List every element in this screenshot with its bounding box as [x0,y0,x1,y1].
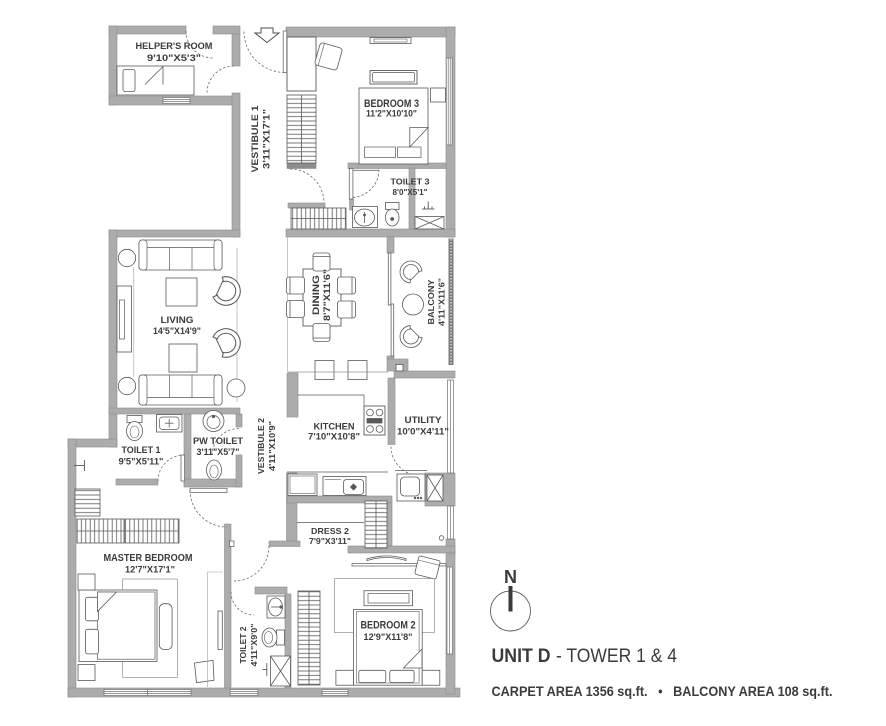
svg-text:TOILET 1: TOILET 1 [122,445,162,456]
svg-text:8'7"X11'6": 8'7"X11'6" [322,269,332,321]
svg-text:N: N [504,567,517,587]
svg-text:DRESS 2: DRESS 2 [311,526,349,536]
svg-text:9'10"X5'3": 9'10"X5'3" [147,53,201,63]
svg-text:DINING: DINING [311,275,322,315]
svg-text:BEDROOM 2: BEDROOM 2 [361,620,416,632]
svg-text:14'5"X14'9": 14'5"X14'9" [153,326,201,336]
svg-text:3'11"X17'1": 3'11"X17'1" [262,109,272,169]
svg-text:12'7"X17'1": 12'7"X17'1" [125,565,175,576]
svg-text:8'0"X5'1": 8'0"X5'1" [393,188,428,197]
svg-text:MASTER BEDROOM: MASTER BEDROOM [104,552,193,564]
svg-text:10'0"X4'11": 10'0"X4'11" [397,427,449,437]
svg-text:UTILITY: UTILITY [405,415,443,426]
svg-text:7'9"X3'11": 7'9"X3'11" [309,537,351,546]
svg-text:UNIT D: UNIT D [492,646,551,667]
svg-text:BALCONY: BALCONY [426,279,436,324]
svg-text:- TOWER 1 & 4: - TOWER 1 & 4 [556,646,677,667]
svg-text:11'2"X10'10": 11'2"X10'10" [366,109,417,120]
svg-text:VESTIBULE 2: VESTIBULE 2 [256,418,266,474]
svg-text:VESTIBULE 1: VESTIBULE 1 [250,105,261,173]
svg-text:TOILET 2: TOILET 2 [238,626,248,663]
svg-text:PW TOILET: PW TOILET [193,436,243,447]
svg-text:CARPET AREA 1356 sq.ft. •: CARPET AREA 1356 sq.ft. • BALCONY AREA 1… [492,684,833,699]
svg-text:12'9"X11'8": 12'9"X11'8" [364,632,413,643]
svg-text:3'11"X5'7": 3'11"X5'7" [197,447,240,457]
svg-text:9'5"X5'11": 9'5"X5'11" [119,457,164,467]
svg-text:4'11"X11'6": 4'11"X11'6" [438,278,447,326]
svg-text:HELPER'S ROOM: HELPER'S ROOM [136,41,213,52]
svg-text:4'11"X9'0": 4'11"X9'0" [250,623,259,666]
svg-text:7'10"X10'8": 7'10"X10'8" [308,432,360,442]
svg-text:LIVING: LIVING [161,315,194,326]
svg-text:TOILET 3: TOILET 3 [391,177,430,187]
svg-text:4'11"X10'9": 4'11"X10'9" [268,421,277,471]
